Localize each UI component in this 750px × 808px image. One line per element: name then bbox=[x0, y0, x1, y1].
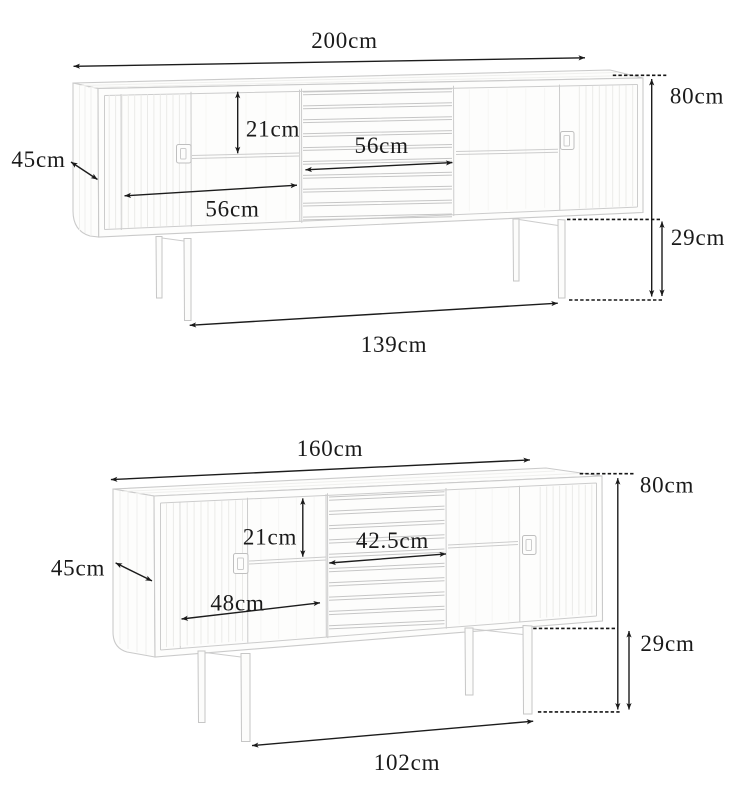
svg-text:21cm: 21cm bbox=[246, 117, 300, 142]
svg-text:56cm: 56cm bbox=[205, 197, 259, 222]
svg-text:56cm: 56cm bbox=[355, 133, 409, 158]
svg-text:45cm: 45cm bbox=[11, 147, 65, 172]
svg-text:102cm: 102cm bbox=[374, 750, 441, 775]
svg-text:42.5cm: 42.5cm bbox=[356, 528, 429, 553]
svg-text:48cm: 48cm bbox=[210, 591, 264, 616]
svg-text:80cm: 80cm bbox=[640, 473, 694, 498]
svg-text:80cm: 80cm bbox=[670, 84, 724, 109]
svg-text:139cm: 139cm bbox=[361, 332, 428, 357]
svg-text:45cm: 45cm bbox=[51, 556, 105, 581]
svg-text:29cm: 29cm bbox=[671, 225, 725, 250]
svg-text:29cm: 29cm bbox=[640, 631, 694, 656]
svg-text:160cm: 160cm bbox=[297, 436, 364, 461]
svg-text:21cm: 21cm bbox=[243, 525, 297, 550]
svg-text:200cm: 200cm bbox=[311, 28, 378, 53]
